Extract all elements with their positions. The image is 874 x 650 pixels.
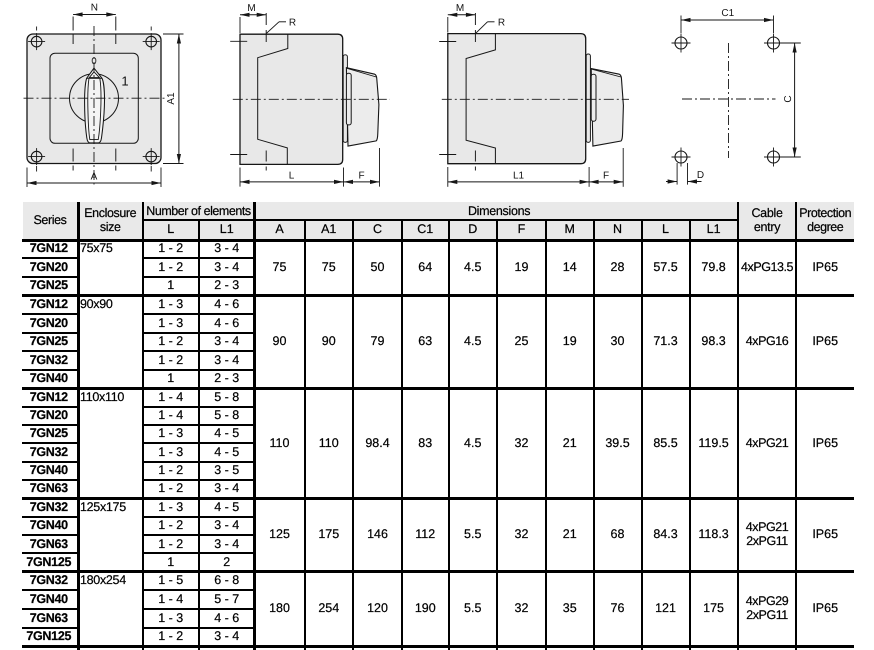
svg-text:1: 1 <box>121 73 128 88</box>
svg-text:L: L <box>289 170 295 181</box>
svg-text:A: A <box>91 172 98 183</box>
svg-text:A1: A1 <box>166 92 177 105</box>
svg-text:L1: L1 <box>513 170 525 181</box>
svg-text:C1: C1 <box>721 8 734 19</box>
svg-text:D: D <box>697 170 704 181</box>
svg-text:R: R <box>289 17 296 28</box>
svg-text:R: R <box>498 17 505 28</box>
svg-text:C: C <box>783 95 794 102</box>
svg-text:N: N <box>91 3 98 14</box>
svg-text:M: M <box>247 3 255 14</box>
svg-text:F: F <box>358 170 364 181</box>
svg-text:F: F <box>603 170 609 181</box>
svg-text:M: M <box>456 3 464 14</box>
